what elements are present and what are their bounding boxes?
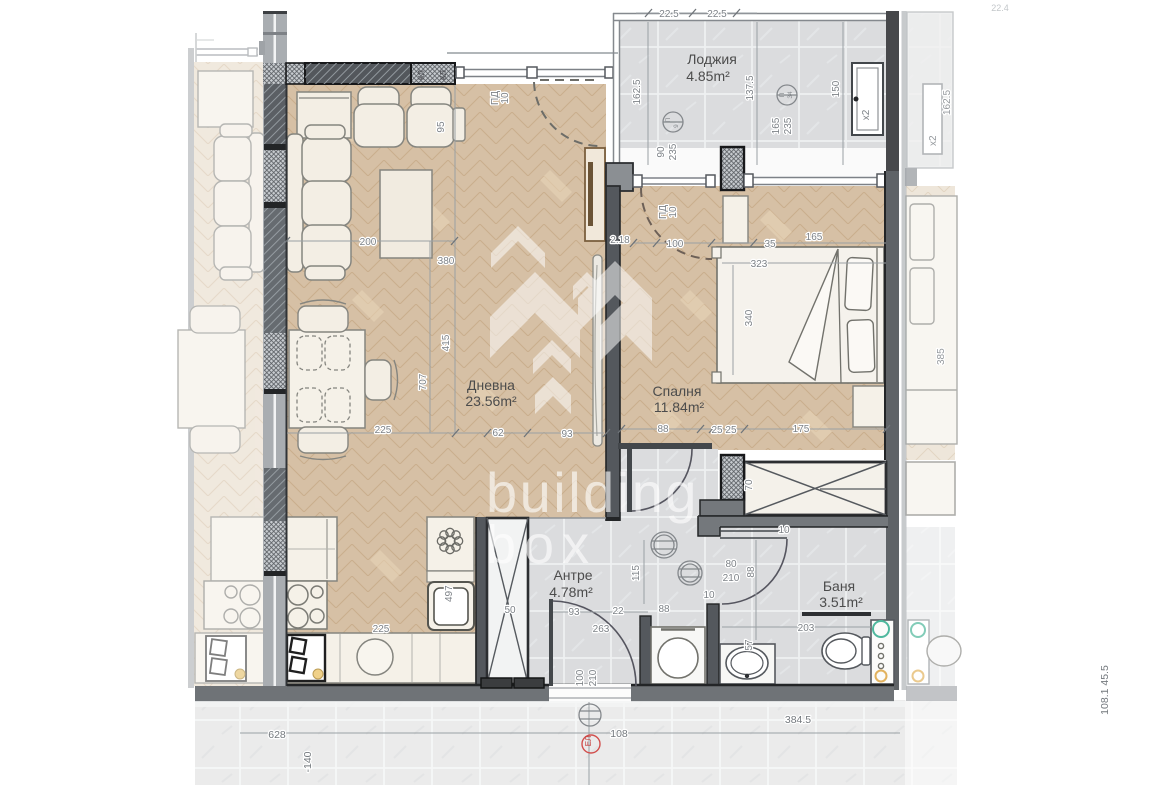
svg-text:70: 70 [744, 479, 755, 491]
svg-text:34: 34 [787, 91, 794, 99]
svg-text:323: 323 [751, 259, 768, 270]
svg-text:88: 88 [658, 604, 670, 615]
svg-text:162.5: 162.5 [632, 79, 643, 104]
svg-text:35: 35 [764, 239, 776, 250]
svg-text:Баня: Баня [823, 578, 855, 594]
svg-text:x2: x2 [861, 109, 872, 120]
svg-text:203: 203 [798, 623, 815, 634]
svg-text:150: 150 [831, 80, 842, 97]
svg-text:165: 165 [771, 117, 782, 134]
svg-text:2.18: 2.18 [610, 235, 630, 246]
svg-text:380: 380 [438, 256, 455, 267]
svg-text:80: 80 [725, 559, 737, 570]
svg-text:П: П [665, 117, 672, 122]
svg-text:137.5: 137.5 [745, 75, 756, 100]
svg-text:10: 10 [668, 206, 679, 218]
svg-text:КЛ: КЛ [417, 70, 426, 80]
svg-text:4.78m²: 4.78m² [549, 584, 593, 600]
svg-text:4.85m²: 4.85m² [686, 68, 730, 84]
svg-text:225: 225 [373, 624, 390, 635]
svg-text:22.5: 22.5 [707, 9, 727, 20]
svg-text:КЛ: КЛ [439, 70, 448, 80]
svg-text:25 25: 25 25 [711, 425, 736, 436]
svg-text:707: 707 [418, 373, 429, 390]
svg-text:x2: x2 [928, 135, 939, 146]
svg-text:108: 108 [610, 728, 628, 740]
svg-text:90: 90 [656, 146, 667, 158]
svg-text:210: 210 [588, 669, 599, 686]
svg-text:88: 88 [746, 566, 757, 578]
svg-text:9: 9 [673, 124, 680, 128]
svg-text:115: 115 [631, 565, 642, 581]
svg-text:225: 225 [375, 425, 392, 436]
svg-text:210: 210 [723, 573, 740, 584]
svg-text:П: П [779, 92, 786, 97]
svg-text:88: 88 [657, 424, 669, 435]
svg-text:95: 95 [436, 121, 447, 133]
svg-text:165: 165 [806, 232, 823, 243]
svg-text:162.5: 162.5 [942, 90, 953, 115]
svg-text:22: 22 [612, 606, 624, 617]
svg-text:175: 175 [793, 424, 810, 435]
svg-text:385: 385 [936, 348, 947, 365]
svg-text:ЕЛ: ЕЛ [584, 736, 593, 747]
svg-text:22.5: 22.5 [659, 9, 679, 20]
svg-text:100: 100 [575, 669, 586, 686]
svg-text:628: 628 [268, 729, 286, 741]
svg-text:384.5: 384.5 [785, 714, 811, 726]
svg-text:62: 62 [492, 428, 504, 439]
svg-text:10: 10 [703, 590, 715, 601]
svg-text:235: 235 [783, 117, 794, 134]
svg-text:10: 10 [778, 525, 790, 536]
svg-text:box: box [486, 515, 597, 575]
svg-text:108.1 45.5: 108.1 45.5 [1099, 665, 1111, 715]
svg-text:23.56m²: 23.56m² [465, 393, 517, 409]
svg-text:Лоджия: Лоджия [687, 51, 737, 67]
svg-text:340: 340 [744, 309, 755, 326]
svg-text:200: 200 [360, 237, 377, 248]
svg-text:22.4: 22.4 [991, 3, 1009, 13]
svg-text:235: 235 [668, 143, 679, 160]
svg-text:497: 497 [444, 585, 455, 602]
svg-text:100: 100 [667, 239, 684, 250]
svg-text:10: 10 [500, 92, 511, 104]
svg-text:93: 93 [568, 607, 580, 618]
svg-text:415: 415 [441, 334, 452, 351]
svg-text:93: 93 [561, 429, 573, 440]
svg-text:263: 263 [593, 624, 610, 635]
svg-text:11.84m²: 11.84m² [654, 399, 705, 415]
svg-text:3.51m²: 3.51m² [819, 594, 863, 610]
svg-text:57: 57 [744, 639, 755, 651]
svg-text:-140: -140 [302, 751, 314, 772]
svg-text:50: 50 [504, 605, 516, 616]
svg-text:Спалня: Спалня [653, 383, 702, 399]
svg-text:Дневна: Дневна [467, 377, 515, 393]
